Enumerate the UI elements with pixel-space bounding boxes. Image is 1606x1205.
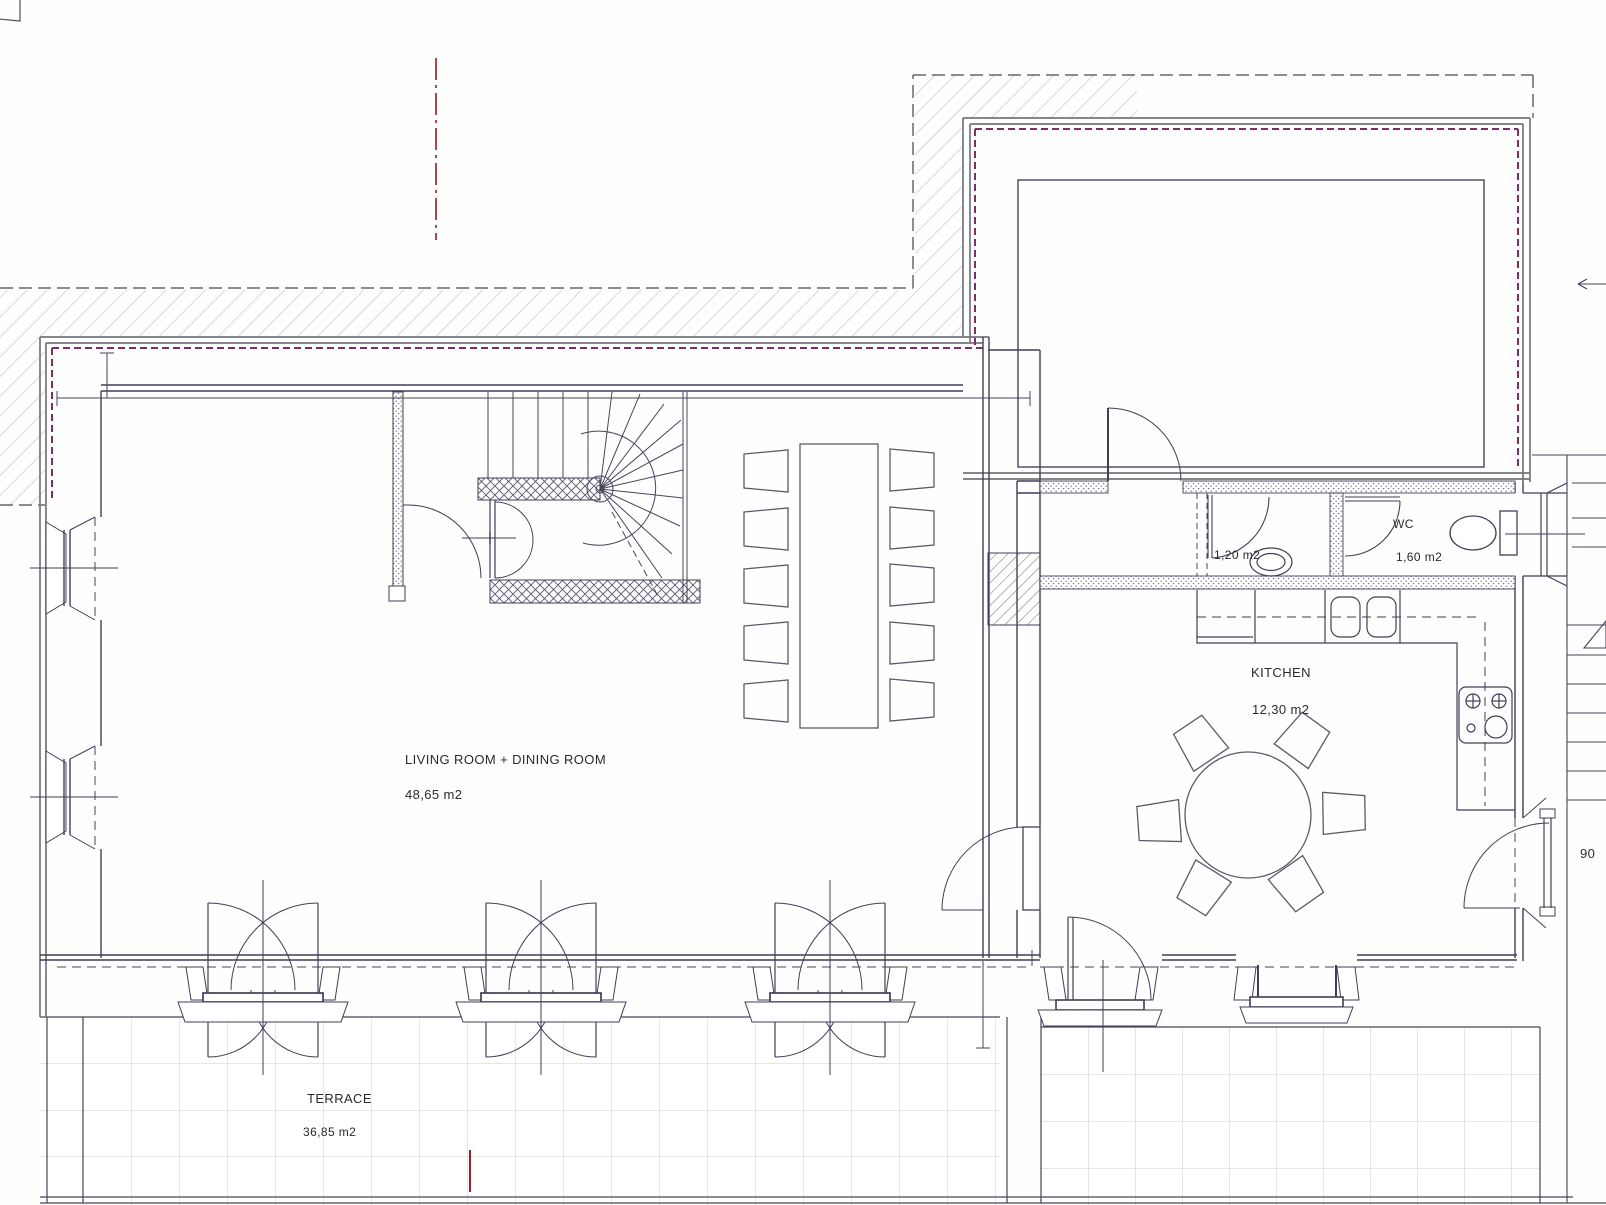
door-width-annotation: 90 [1580, 846, 1595, 861]
kitchen-area: 12,30 m2 [1252, 702, 1309, 717]
wc-label: WC [1393, 517, 1414, 531]
terrace-area: 36,85 m2 [303, 1125, 356, 1139]
terrace-label: TERRACE [307, 1091, 372, 1106]
floor-plan-drawing [0, 0, 1606, 1205]
hatched-column [988, 553, 1040, 625]
terrace-tiles [40, 1017, 1606, 1205]
washroom-area: 1,20 m2 [1214, 548, 1260, 562]
wc-area: 1,60 m2 [1396, 550, 1442, 564]
kitchen-label: KITCHEN [1251, 665, 1311, 680]
floor-plan-page: LIVING ROOM + DINING ROOM 48,65 m2 KITCH… [0, 0, 1606, 1205]
living-room-area: 48,65 m2 [405, 787, 462, 802]
living-room-label: LIVING ROOM + DINING ROOM [405, 752, 606, 767]
